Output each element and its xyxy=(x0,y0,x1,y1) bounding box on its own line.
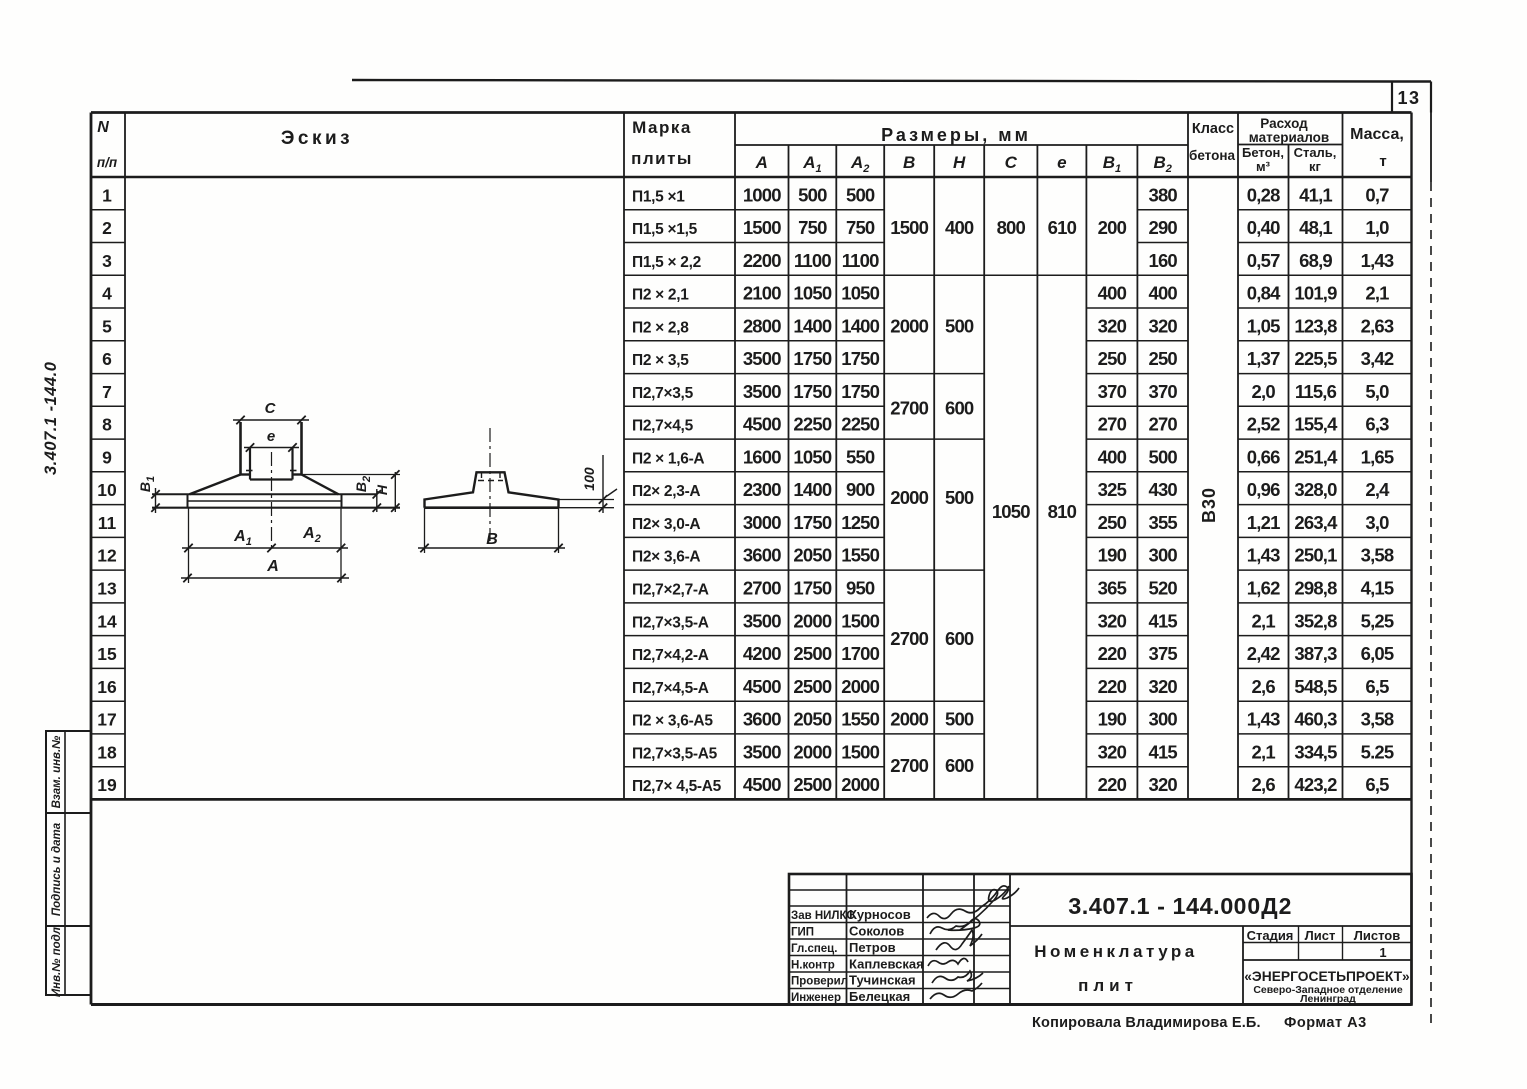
svg-text:101,9: 101,9 xyxy=(1294,283,1337,304)
svg-text:48,1: 48,1 xyxy=(1299,217,1332,238)
svg-text:2100: 2100 xyxy=(743,283,781,304)
svg-text:2300: 2300 xyxy=(743,479,781,500)
svg-text:2050: 2050 xyxy=(793,545,831,566)
svg-text:В2: В2 xyxy=(353,476,373,492)
svg-text:1750: 1750 xyxy=(793,512,831,533)
svg-text:334,5: 334,5 xyxy=(1294,741,1337,762)
svg-text:1050: 1050 xyxy=(992,501,1030,522)
svg-text:6,3: 6,3 xyxy=(1365,414,1389,435)
svg-text:4: 4 xyxy=(102,284,112,304)
svg-text:600: 600 xyxy=(945,628,974,649)
svg-text:В1: В1 xyxy=(1103,153,1121,175)
svg-text:1400: 1400 xyxy=(793,315,831,336)
svg-text:2700: 2700 xyxy=(890,628,928,649)
svg-text:320: 320 xyxy=(1098,315,1127,336)
svg-text:3600: 3600 xyxy=(743,545,781,566)
svg-text:Масса,: Масса, xyxy=(1350,126,1404,143)
svg-text:320: 320 xyxy=(1148,315,1177,336)
svg-text:1100: 1100 xyxy=(794,250,831,271)
svg-text:500: 500 xyxy=(1148,447,1177,468)
svg-text:П2 × 3,6-А5: П2 × 3,6-А5 xyxy=(632,713,713,730)
svg-text:А: А xyxy=(755,153,768,172)
svg-text:2000: 2000 xyxy=(890,315,928,336)
svg-text:П2,7× 4,5-А5: П2,7× 4,5-А5 xyxy=(632,778,722,795)
svg-text:Размеры, мм: Размеры, мм xyxy=(881,125,1031,145)
svg-text:2500: 2500 xyxy=(793,643,831,664)
svg-text:2000: 2000 xyxy=(890,709,928,730)
svg-text:263,4: 263,4 xyxy=(1294,512,1338,533)
svg-text:400: 400 xyxy=(1148,283,1177,304)
svg-text:5,0: 5,0 xyxy=(1365,381,1389,402)
svg-text:N: N xyxy=(97,119,109,136)
svg-text:1700: 1700 xyxy=(841,643,879,664)
svg-text:18: 18 xyxy=(97,742,117,762)
svg-text:160: 160 xyxy=(1148,250,1177,271)
svg-text:плиты: плиты xyxy=(631,149,693,168)
svg-text:Соколов: Соколов xyxy=(849,924,904,939)
svg-text:600: 600 xyxy=(945,397,974,418)
svg-text:2: 2 xyxy=(102,218,112,238)
svg-text:2700: 2700 xyxy=(743,578,781,599)
svg-text:2000: 2000 xyxy=(890,487,928,508)
svg-text:Н: Н xyxy=(374,484,390,495)
svg-text:П2,7×3,5: П2,7×3,5 xyxy=(632,385,694,402)
svg-text:П1,5 ×1: П1,5 ×1 xyxy=(632,188,685,205)
svg-text:352,8: 352,8 xyxy=(1294,610,1337,631)
svg-text:п/п: п/п xyxy=(97,155,118,170)
svg-text:В: В xyxy=(486,531,498,548)
svg-text:6,05: 6,05 xyxy=(1361,643,1394,664)
svg-text:10: 10 xyxy=(97,480,117,500)
svg-text:6,5: 6,5 xyxy=(1365,676,1389,697)
svg-text:320: 320 xyxy=(1098,741,1127,762)
svg-text:Расход: Расход xyxy=(1260,116,1308,131)
svg-text:8: 8 xyxy=(102,415,112,435)
svg-text:П2,7×4,2-А: П2,7×4,2-А xyxy=(632,647,709,664)
svg-text:1,0: 1,0 xyxy=(1365,217,1389,238)
svg-text:6: 6 xyxy=(102,349,112,369)
svg-text:1750: 1750 xyxy=(793,381,831,402)
svg-text:1,43: 1,43 xyxy=(1247,545,1280,566)
svg-text:15: 15 xyxy=(97,644,117,664)
svg-text:300: 300 xyxy=(1148,545,1177,566)
svg-text:П2,7×3,5-А: П2,7×3,5-А xyxy=(632,614,709,631)
svg-text:3,42: 3,42 xyxy=(1361,348,1394,369)
svg-text:А: А xyxy=(266,558,279,575)
svg-text:1050: 1050 xyxy=(793,447,831,468)
svg-text:2000: 2000 xyxy=(793,741,831,762)
svg-text:«ЭНЕРГОСЕТЬПРОЕКТ»: «ЭНЕРГОСЕТЬПРОЕКТ» xyxy=(1244,969,1410,984)
svg-text:3.407.1 -144.0: 3.407.1 -144.0 xyxy=(42,361,60,475)
svg-text:П2 × 2,8: П2 × 2,8 xyxy=(632,319,689,336)
svg-text:2050: 2050 xyxy=(793,709,831,730)
svg-text:1050: 1050 xyxy=(841,283,879,304)
svg-text:1750: 1750 xyxy=(841,381,879,402)
svg-text:365: 365 xyxy=(1098,578,1127,599)
svg-text:П2× 3,0-А: П2× 3,0-А xyxy=(632,516,700,533)
svg-text:370: 370 xyxy=(1098,381,1127,402)
svg-text:225,5: 225,5 xyxy=(1294,348,1337,369)
svg-text:100: 100 xyxy=(581,467,597,491)
svg-text:0,96: 0,96 xyxy=(1247,479,1280,500)
svg-text:1,65: 1,65 xyxy=(1361,447,1394,468)
svg-text:68,9: 68,9 xyxy=(1299,250,1332,271)
svg-text:3.407.1 - 144.0: 3.407.1 - 144.0 xyxy=(1068,893,1234,919)
svg-text:0,28: 0,28 xyxy=(1247,184,1280,205)
svg-text:1550: 1550 xyxy=(841,709,879,730)
svg-text:2,1: 2,1 xyxy=(1252,610,1276,631)
svg-text:950: 950 xyxy=(846,578,875,599)
svg-text:41,1: 41,1 xyxy=(1299,184,1332,205)
svg-text:1,62: 1,62 xyxy=(1247,578,1280,599)
svg-text:12: 12 xyxy=(97,546,117,566)
svg-text:4200: 4200 xyxy=(743,643,781,664)
svg-text:1250: 1250 xyxy=(841,512,879,533)
svg-text:7: 7 xyxy=(102,382,112,402)
svg-text:750: 750 xyxy=(846,217,875,238)
svg-text:м³: м³ xyxy=(1256,159,1271,174)
svg-text:Инженер: Инженер xyxy=(791,992,841,1004)
svg-text:2,4: 2,4 xyxy=(1365,479,1390,500)
svg-text:4500: 4500 xyxy=(743,414,781,435)
svg-text:В2: В2 xyxy=(1153,153,1171,175)
svg-text:1,05: 1,05 xyxy=(1247,315,1280,336)
svg-text:3000: 3000 xyxy=(743,512,781,533)
svg-text:материалов: материалов xyxy=(1249,130,1329,145)
svg-text:Лист: Лист xyxy=(1305,928,1336,943)
svg-text:320: 320 xyxy=(1098,610,1127,631)
svg-text:П2 × 3,5: П2 × 3,5 xyxy=(632,352,689,369)
svg-text:400: 400 xyxy=(945,217,974,238)
svg-text:3500: 3500 xyxy=(743,381,781,402)
svg-text:Марка: Марка xyxy=(632,118,692,137)
svg-text:кг: кг xyxy=(1309,159,1322,174)
svg-text:415: 415 xyxy=(1148,610,1177,631)
svg-text:е: е xyxy=(1057,153,1066,172)
svg-text:250: 250 xyxy=(1098,512,1127,533)
svg-text:1500: 1500 xyxy=(890,217,928,238)
svg-text:3,0: 3,0 xyxy=(1365,512,1389,533)
svg-text:2,1: 2,1 xyxy=(1252,741,1276,762)
svg-text:П2× 3,6-А: П2× 3,6-А xyxy=(632,549,700,566)
svg-text:430: 430 xyxy=(1148,479,1177,500)
svg-text:5.25: 5.25 xyxy=(1361,741,1394,762)
svg-text:123,8: 123,8 xyxy=(1294,315,1337,336)
svg-text:900: 900 xyxy=(846,479,875,500)
svg-text:1,43: 1,43 xyxy=(1247,709,1280,730)
svg-text:1500: 1500 xyxy=(841,741,879,762)
svg-text:610: 610 xyxy=(1048,217,1077,238)
svg-text:2700: 2700 xyxy=(890,755,928,776)
svg-text:355: 355 xyxy=(1148,512,1177,533)
svg-text:1000: 1000 xyxy=(743,184,781,205)
svg-text:387,3: 387,3 xyxy=(1294,643,1337,664)
svg-text:бетона: бетона xyxy=(1189,148,1236,163)
svg-text:251,4: 251,4 xyxy=(1294,447,1338,468)
svg-text:19: 19 xyxy=(97,775,117,795)
svg-text:500: 500 xyxy=(798,184,827,205)
svg-text:2,63: 2,63 xyxy=(1361,315,1394,336)
svg-text:А2: А2 xyxy=(302,525,321,545)
svg-text:810: 810 xyxy=(1048,501,1077,522)
svg-text:0,7: 0,7 xyxy=(1365,184,1389,205)
svg-text:290: 290 xyxy=(1148,217,1177,238)
svg-text:13: 13 xyxy=(1397,88,1420,108)
svg-text:В30: В30 xyxy=(1199,487,1219,523)
svg-text:плит: плит xyxy=(1078,976,1138,995)
svg-text:В: В xyxy=(903,153,915,172)
svg-text:1750: 1750 xyxy=(793,348,831,369)
svg-text:5,25: 5,25 xyxy=(1361,610,1394,631)
svg-text:320: 320 xyxy=(1148,676,1177,697)
svg-text:Стадия: Стадия xyxy=(1247,928,1294,943)
svg-text:270: 270 xyxy=(1148,414,1177,435)
svg-text:190: 190 xyxy=(1098,709,1127,730)
svg-text:750: 750 xyxy=(798,217,827,238)
svg-text:Петров: Петров xyxy=(849,940,896,955)
svg-text:320: 320 xyxy=(1148,774,1177,795)
svg-text:Бетон,: Бетон, xyxy=(1242,145,1284,160)
svg-text:2000: 2000 xyxy=(793,610,831,631)
svg-text:1550: 1550 xyxy=(841,545,879,566)
svg-text:1: 1 xyxy=(1379,945,1386,960)
svg-text:190: 190 xyxy=(1098,545,1127,566)
svg-text:1400: 1400 xyxy=(793,479,831,500)
svg-text:3500: 3500 xyxy=(743,610,781,631)
svg-text:С: С xyxy=(265,400,277,417)
svg-text:Курносов: Курносов xyxy=(849,907,911,922)
svg-text:Эскиз: Эскиз xyxy=(281,128,353,149)
svg-text:298,8: 298,8 xyxy=(1294,578,1337,599)
svg-text:П2,7×3,5-А5: П2,7×3,5-А5 xyxy=(632,745,718,762)
svg-text:2500: 2500 xyxy=(793,676,831,697)
svg-text:500: 500 xyxy=(945,315,974,336)
svg-text:1050: 1050 xyxy=(793,283,831,304)
svg-text:6,5: 6,5 xyxy=(1365,774,1389,795)
svg-text:4,15: 4,15 xyxy=(1361,578,1394,599)
svg-text:1100: 1100 xyxy=(842,250,879,271)
svg-text:00Д2: 00Д2 xyxy=(1234,893,1293,919)
svg-text:500: 500 xyxy=(945,487,974,508)
svg-text:Формат А3: Формат А3 xyxy=(1284,1015,1367,1031)
svg-text:13: 13 xyxy=(97,579,117,599)
svg-text:155,4: 155,4 xyxy=(1294,414,1338,435)
svg-text:Подпись и дата: Подпись и дата xyxy=(51,822,63,916)
svg-text:3600: 3600 xyxy=(743,709,781,730)
svg-text:16: 16 xyxy=(97,677,117,697)
svg-text:В1: В1 xyxy=(137,476,157,492)
svg-text:1500: 1500 xyxy=(841,610,879,631)
svg-text:600: 600 xyxy=(945,755,974,776)
svg-text:2000: 2000 xyxy=(841,676,879,697)
svg-text:т: т xyxy=(1379,153,1386,170)
svg-text:220: 220 xyxy=(1098,676,1127,697)
svg-text:400: 400 xyxy=(1098,283,1127,304)
svg-text:2,1: 2,1 xyxy=(1365,283,1389,304)
svg-text:2200: 2200 xyxy=(743,250,781,271)
svg-text:2250: 2250 xyxy=(793,414,831,435)
svg-text:Тучинская: Тучинская xyxy=(849,973,916,988)
svg-text:2000: 2000 xyxy=(841,774,879,795)
svg-text:П2 × 2,1: П2 × 2,1 xyxy=(632,287,689,304)
svg-text:270: 270 xyxy=(1098,414,1127,435)
svg-text:Н: Н xyxy=(953,153,966,172)
svg-text:Н.контр: Н.контр xyxy=(791,960,835,972)
svg-text:П2,7×4,5: П2,7×4,5 xyxy=(632,418,694,435)
svg-text:1,43: 1,43 xyxy=(1361,250,1394,271)
svg-text:2,52: 2,52 xyxy=(1247,414,1280,435)
svg-text:Ленинград: Ленинград xyxy=(1300,993,1356,1005)
svg-text:П1,5 ×1,5: П1,5 ×1,5 xyxy=(632,221,698,238)
svg-text:1750: 1750 xyxy=(841,348,879,369)
svg-text:0,57: 0,57 xyxy=(1247,250,1280,271)
svg-text:2250: 2250 xyxy=(841,414,879,435)
svg-text:Инв.№ подл.: Инв.№ подл. xyxy=(51,924,63,997)
svg-text:Каплевская: Каплевская xyxy=(849,957,924,972)
svg-text:3500: 3500 xyxy=(743,741,781,762)
svg-text:9: 9 xyxy=(102,448,112,468)
svg-text:500: 500 xyxy=(945,709,974,730)
svg-text:250: 250 xyxy=(1098,348,1127,369)
svg-text:375: 375 xyxy=(1148,643,1177,664)
svg-text:3,58: 3,58 xyxy=(1361,709,1394,730)
svg-text:Гл.спец.: Гл.спец. xyxy=(791,943,837,955)
svg-text:Листов: Листов xyxy=(1354,928,1400,943)
svg-text:0,40: 0,40 xyxy=(1247,217,1280,238)
svg-text:Взам. инв.№: Взам. инв.№ xyxy=(51,736,63,809)
svg-text:Белецкая: Белецкая xyxy=(849,989,910,1004)
svg-text:328,0: 328,0 xyxy=(1294,479,1337,500)
svg-text:460,3: 460,3 xyxy=(1294,709,1337,730)
svg-text:220: 220 xyxy=(1098,643,1127,664)
svg-text:423,2: 423,2 xyxy=(1294,774,1337,795)
svg-text:3: 3 xyxy=(102,251,112,271)
svg-text:1600: 1600 xyxy=(743,447,781,468)
svg-text:2,0: 2,0 xyxy=(1252,381,1276,402)
svg-text:2800: 2800 xyxy=(743,315,781,336)
svg-text:0,84: 0,84 xyxy=(1247,283,1281,304)
svg-text:1: 1 xyxy=(102,185,112,205)
svg-text:17: 17 xyxy=(97,710,116,730)
svg-text:Зав НИЛКС: Зав НИЛКС xyxy=(791,910,855,922)
svg-text:400: 400 xyxy=(1098,447,1127,468)
svg-text:3500: 3500 xyxy=(743,348,781,369)
svg-text:200: 200 xyxy=(1098,217,1127,238)
svg-text:115,6: 115,6 xyxy=(1295,381,1337,402)
svg-text:380: 380 xyxy=(1148,184,1177,205)
svg-text:2,6: 2,6 xyxy=(1252,676,1276,697)
svg-text:520: 520 xyxy=(1148,578,1177,599)
svg-text:1400: 1400 xyxy=(841,315,879,336)
svg-text:П2× 2,3-А: П2× 2,3-А xyxy=(632,483,700,500)
svg-text:14: 14 xyxy=(97,611,117,631)
svg-text:1,21: 1,21 xyxy=(1247,512,1280,533)
svg-text:1,37: 1,37 xyxy=(1247,348,1280,369)
svg-text:Сталь,: Сталь, xyxy=(1294,145,1337,160)
svg-text:250: 250 xyxy=(1148,348,1177,369)
svg-text:Номенклатура: Номенклатура xyxy=(1034,942,1198,961)
svg-text:370: 370 xyxy=(1148,381,1177,402)
svg-text:ГИП: ГИП xyxy=(791,927,814,939)
svg-text:С: С xyxy=(1005,153,1018,172)
svg-text:550: 550 xyxy=(846,447,875,468)
svg-text:800: 800 xyxy=(997,217,1026,238)
svg-text:300: 300 xyxy=(1148,709,1177,730)
svg-text:2,6: 2,6 xyxy=(1252,774,1276,795)
svg-text:4500: 4500 xyxy=(743,676,781,697)
svg-text:П2 × 1,6-А: П2 × 1,6-А xyxy=(632,451,704,468)
svg-text:325: 325 xyxy=(1098,479,1127,500)
svg-text:П2,7×2,7-А: П2,7×2,7-А xyxy=(632,582,709,599)
svg-text:2700: 2700 xyxy=(890,397,928,418)
svg-text:Копировала Владимирова Е.Б.: Копировала Владимирова Е.Б. xyxy=(1032,1015,1261,1031)
svg-text:П1,5 × 2,2: П1,5 × 2,2 xyxy=(632,254,701,271)
svg-text:2500: 2500 xyxy=(793,774,831,795)
svg-text:е: е xyxy=(267,428,275,445)
svg-text:Класс: Класс xyxy=(1192,121,1234,137)
svg-text:1500: 1500 xyxy=(743,217,781,238)
svg-text:4500: 4500 xyxy=(743,774,781,795)
svg-text:220: 220 xyxy=(1098,774,1127,795)
svg-text:5: 5 xyxy=(102,316,112,336)
svg-text:П2,7×4,5-А: П2,7×4,5-А xyxy=(632,680,709,697)
svg-text:250,1: 250,1 xyxy=(1294,545,1337,566)
svg-text:Проверил: Проверил xyxy=(791,976,848,988)
svg-text:А2: А2 xyxy=(850,153,869,175)
svg-text:2,42: 2,42 xyxy=(1247,643,1280,664)
svg-text:А1: А1 xyxy=(802,153,821,175)
svg-text:11: 11 xyxy=(98,513,117,533)
svg-text:548,5: 548,5 xyxy=(1294,676,1337,697)
svg-text:1750: 1750 xyxy=(793,578,831,599)
svg-text:3,58: 3,58 xyxy=(1361,545,1394,566)
svg-text:415: 415 xyxy=(1148,741,1177,762)
svg-text:А1: А1 xyxy=(233,528,252,548)
svg-text:0,66: 0,66 xyxy=(1247,447,1280,468)
svg-text:500: 500 xyxy=(846,184,875,205)
